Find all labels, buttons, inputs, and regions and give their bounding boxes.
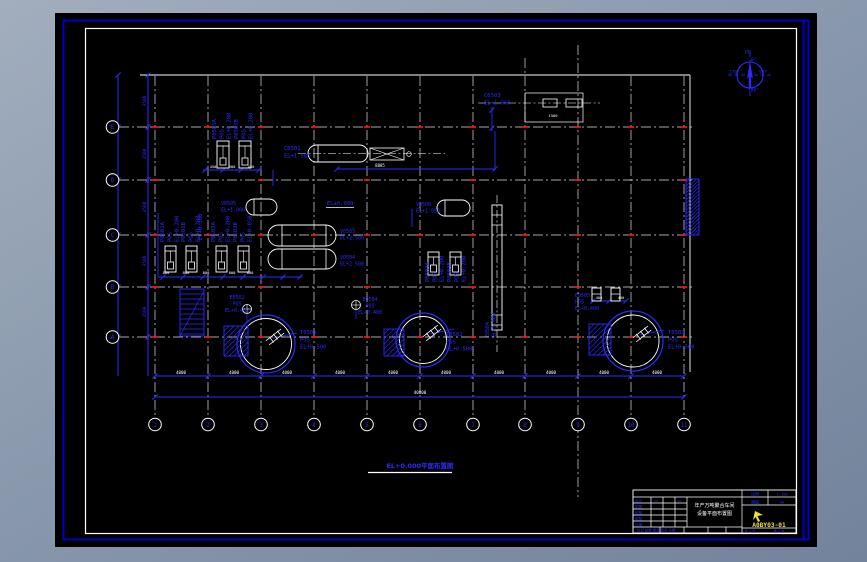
compass-270-label: 270°: [729, 70, 740, 76]
dim-8885: 8885: [375, 163, 385, 168]
compass-90-label: 90°: [759, 70, 767, 76]
tb-row-design: 设计: [635, 498, 643, 503]
scale-label: 比例: [751, 492, 759, 497]
compass-180-label: 180°: [748, 88, 759, 94]
el-0000-label: EL±0.000: [327, 201, 354, 207]
format-value: A0: [780, 500, 785, 505]
dim-4000-8: 4000: [546, 370, 557, 375]
compass-0-label: 0°: [751, 57, 757, 63]
dim-4000-9: 4000: [599, 370, 610, 375]
format-label: 图幅: [751, 500, 759, 505]
sheet-number: 第 1 张: [773, 529, 785, 534]
dim-900: 900: [229, 164, 237, 169]
dim-800-3: 800: [203, 270, 211, 275]
row-bubble-label: C: [111, 233, 115, 239]
drawing-number: A0BY03-01: [752, 522, 786, 529]
col-bubble-label: 10: [628, 423, 635, 429]
dim-3500-3: 3500: [142, 201, 148, 212]
col-bubble-label: 2: [206, 423, 210, 429]
scale-value: 1:100: [776, 492, 788, 497]
tb-row-audit: 审核: [635, 516, 643, 521]
col-bubble-label: 7: [471, 423, 475, 429]
dim-450a: 450: [210, 164, 218, 169]
dim-4000-7: 4000: [494, 370, 505, 375]
tb-row-check: 校核: [635, 510, 643, 515]
dim-4000-5: 4000: [388, 370, 399, 375]
col-bubble-label: 8: [523, 423, 527, 429]
dim-4000-1: 4000: [176, 370, 187, 375]
row-bubble-label: E: [111, 125, 115, 131]
row-bubble-label: D: [111, 178, 115, 184]
title-block-drawing-title-line2: 设备平面布置图: [697, 510, 732, 517]
row-bubble-label: A: [111, 335, 115, 341]
dim-3500-4: 3500: [142, 255, 148, 266]
dim-4000-4: 4000: [335, 370, 346, 375]
tb-sig1: ××: [654, 499, 658, 503]
el-0300-label: EL+0.300: [198, 214, 204, 241]
tb-row-draft: 制图: [635, 504, 643, 509]
dim-400a: 400: [596, 296, 603, 300]
dim-4000-10: 4000: [652, 370, 663, 375]
dim-450b: 450: [248, 164, 256, 169]
dim-800-2: 800: [183, 270, 191, 275]
compass-pn-label: PN: [745, 50, 751, 56]
dim-800-4: 800: [229, 270, 237, 275]
desktop-background: 1234567891011EDCBA P0505APOSEL+0.200P050…: [0, 0, 867, 562]
dim-3500-5: 3500: [142, 306, 148, 317]
col-bubble-label: 4: [312, 423, 316, 429]
dim-4000-6: 4000: [441, 370, 452, 375]
col-bubble-label: 9: [576, 423, 580, 429]
col-bubble-label: 5: [365, 423, 369, 429]
dim-800-5: 800: [247, 270, 255, 275]
plan-title: EL+0.000平面布置图: [386, 461, 454, 470]
col-bubble-label: 3: [259, 423, 263, 429]
dim-3500-1: 3500: [142, 95, 148, 106]
col-bubble-label: 1: [153, 423, 157, 429]
col-bubble-label: 6: [418, 423, 422, 429]
cad-drawing-viewport[interactable]: 1234567891011EDCBA P0505APOSEL+0.200P050…: [0, 0, 867, 562]
col-bubble-label: 11: [681, 423, 688, 429]
tb-sig2: ××: [677, 499, 681, 503]
dim-3500-2: 3500: [142, 148, 148, 159]
dim-1500: 1500: [548, 113, 558, 118]
dim-4000-3: 4000: [282, 370, 293, 375]
dim-800-1: 800: [163, 270, 171, 275]
tb-row-date: 日期: [635, 522, 643, 527]
sheets-total: 共 1 张: [744, 529, 756, 534]
dim-400b: 400: [618, 296, 625, 300]
dim-4000-2: 4000: [229, 370, 240, 375]
dim-total: 40000: [414, 390, 427, 395]
title-block-drawing-title-line1: 年产万吨聚合车间: [694, 502, 734, 509]
row-bubble-label: B: [111, 285, 115, 291]
revision-strip-labels: 标记 处数 更改 签名 日期: [637, 528, 676, 533]
